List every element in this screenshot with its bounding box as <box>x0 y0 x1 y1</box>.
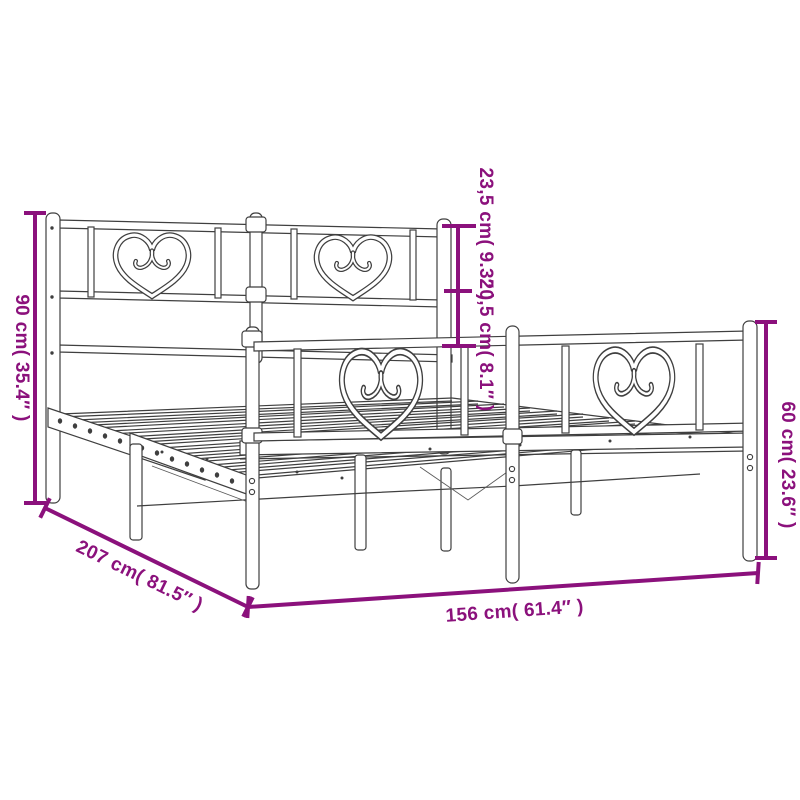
footboard-center-post <box>506 326 519 583</box>
dimension-length-line <box>40 498 253 617</box>
heart-motif <box>116 235 189 296</box>
bed-frame-drawing: 90 cm( 35.4″ ) 23,5 cm( 9.3″ ) 20,5 cm( … <box>0 0 800 800</box>
support-leg <box>441 468 451 551</box>
dimension-label-headboard-height: 90 cm( 35.4″ ) <box>11 294 32 421</box>
headboard-right-post <box>437 219 451 454</box>
headboard-left-post <box>46 213 60 503</box>
support-leg <box>130 444 142 540</box>
support-leg <box>355 455 366 550</box>
heart-motif <box>596 350 673 432</box>
dimension-diagram: 90 cm( 35.4″ ) 23,5 cm( 9.3″ ) 20,5 cm( … <box>0 0 800 800</box>
slatted-base <box>48 398 748 496</box>
dimension-label-width: 156 cm( 61.4″ ) <box>445 596 584 627</box>
dimension-footboard-height-line <box>755 322 777 558</box>
heart-motif <box>317 237 390 298</box>
dimension-label-lower-panel: 20,5 cm( 8.1″ ) <box>475 279 496 412</box>
dimension-label-footboard-height: 60 cm( 23.6″ ) <box>777 401 798 528</box>
footboard-right-post <box>743 321 757 561</box>
